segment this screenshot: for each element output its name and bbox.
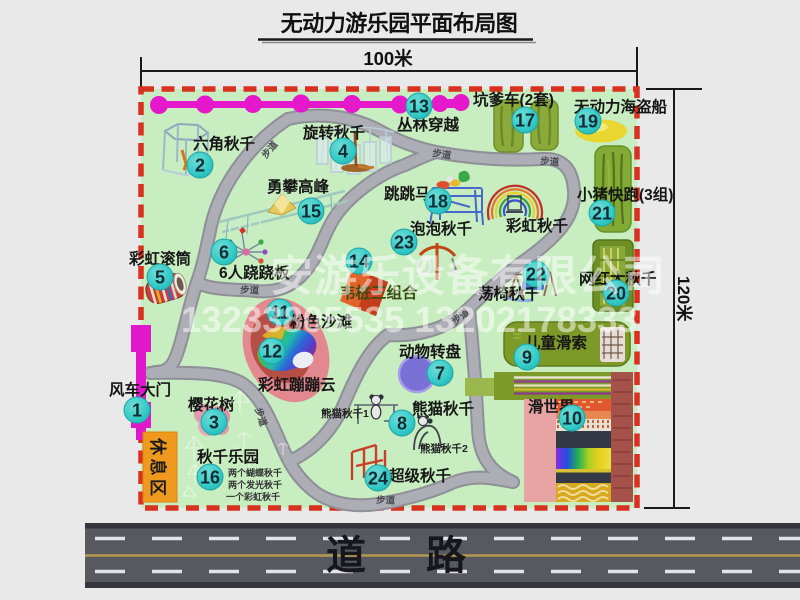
svg-text:彩虹蹦蹦云: 彩虹蹦蹦云 (257, 375, 336, 394)
svg-text:熊猫秋千1: 熊猫秋千1 (321, 407, 369, 420)
svg-text:六角秋千: 六角秋千 (193, 134, 256, 153)
svg-text:1: 1 (132, 401, 142, 421)
svg-text:120米: 120米 (674, 276, 694, 322)
svg-text:风车大门: 风车大门 (109, 380, 171, 399)
svg-text:秋千乐园: 秋千乐园 (197, 447, 259, 466)
svg-text:旋转秋千: 旋转秋千 (302, 123, 366, 142)
svg-text:两个发光秋千: 两个发光秋千 (228, 479, 282, 490)
svg-text:21: 21 (592, 204, 612, 224)
svg-text:8: 8 (397, 414, 407, 434)
svg-text:24: 24 (368, 469, 388, 489)
svg-text:无动力游乐园平面布局图: 无动力游乐园平面布局图 (281, 11, 518, 36)
svg-text:18: 18 (428, 192, 448, 212)
svg-text:17: 17 (515, 111, 535, 131)
svg-text:丛林穿越: 丛林穿越 (397, 115, 460, 134)
svg-text:15: 15 (301, 202, 321, 222)
svg-text:5: 5 (155, 268, 165, 288)
svg-text:9: 9 (522, 348, 532, 368)
svg-text:勇攀高峰: 勇攀高峰 (267, 177, 330, 196)
svg-text:23: 23 (394, 233, 414, 253)
svg-text:动物转盘: 动物转盘 (399, 342, 462, 361)
svg-text:13: 13 (409, 97, 429, 117)
svg-text:4: 4 (338, 142, 348, 162)
svg-text:步道: 步道 (540, 155, 560, 168)
svg-text:6: 6 (219, 243, 229, 263)
svg-text:坑爹车(2套): 坑爹车(2套) (473, 90, 554, 109)
svg-text:一个彩虹秋千: 一个彩虹秋千 (226, 491, 280, 502)
svg-text:10: 10 (562, 409, 582, 429)
svg-text:路: 路 (426, 534, 467, 578)
svg-text:泡泡秋千: 泡泡秋千 (410, 219, 473, 238)
svg-text:7: 7 (435, 364, 445, 384)
svg-text:13233805535 13202178333: 13233805535 13202178333 (181, 299, 638, 340)
svg-text:超级秋千: 超级秋千 (388, 466, 452, 485)
svg-text:16: 16 (200, 468, 220, 488)
svg-text:步道: 步道 (376, 494, 396, 507)
svg-text:跳跳马: 跳跳马 (384, 184, 431, 203)
svg-text:安游乐设备有限公司: 安游乐设备有限公司 (270, 253, 666, 301)
svg-text:2: 2 (195, 156, 205, 176)
svg-text:12: 12 (262, 342, 282, 362)
svg-text:休息区: 休息区 (148, 437, 168, 500)
svg-text:熊猫秋千2: 熊猫秋千2 (420, 442, 468, 455)
svg-text:小猪快跑(3组): 小猪快跑(3组) (577, 185, 673, 204)
svg-text:彩虹秋千: 彩虹秋千 (505, 216, 569, 235)
svg-text:100米: 100米 (363, 48, 413, 69)
svg-text:3: 3 (209, 413, 219, 433)
svg-text:熊猫秋千: 熊猫秋千 (412, 399, 475, 418)
svg-text:步道: 步道 (240, 284, 260, 297)
svg-text:道: 道 (326, 534, 366, 578)
svg-text:两个蝴蝶秋千: 两个蝴蝶秋千 (228, 467, 282, 478)
svg-text:19: 19 (578, 112, 598, 132)
